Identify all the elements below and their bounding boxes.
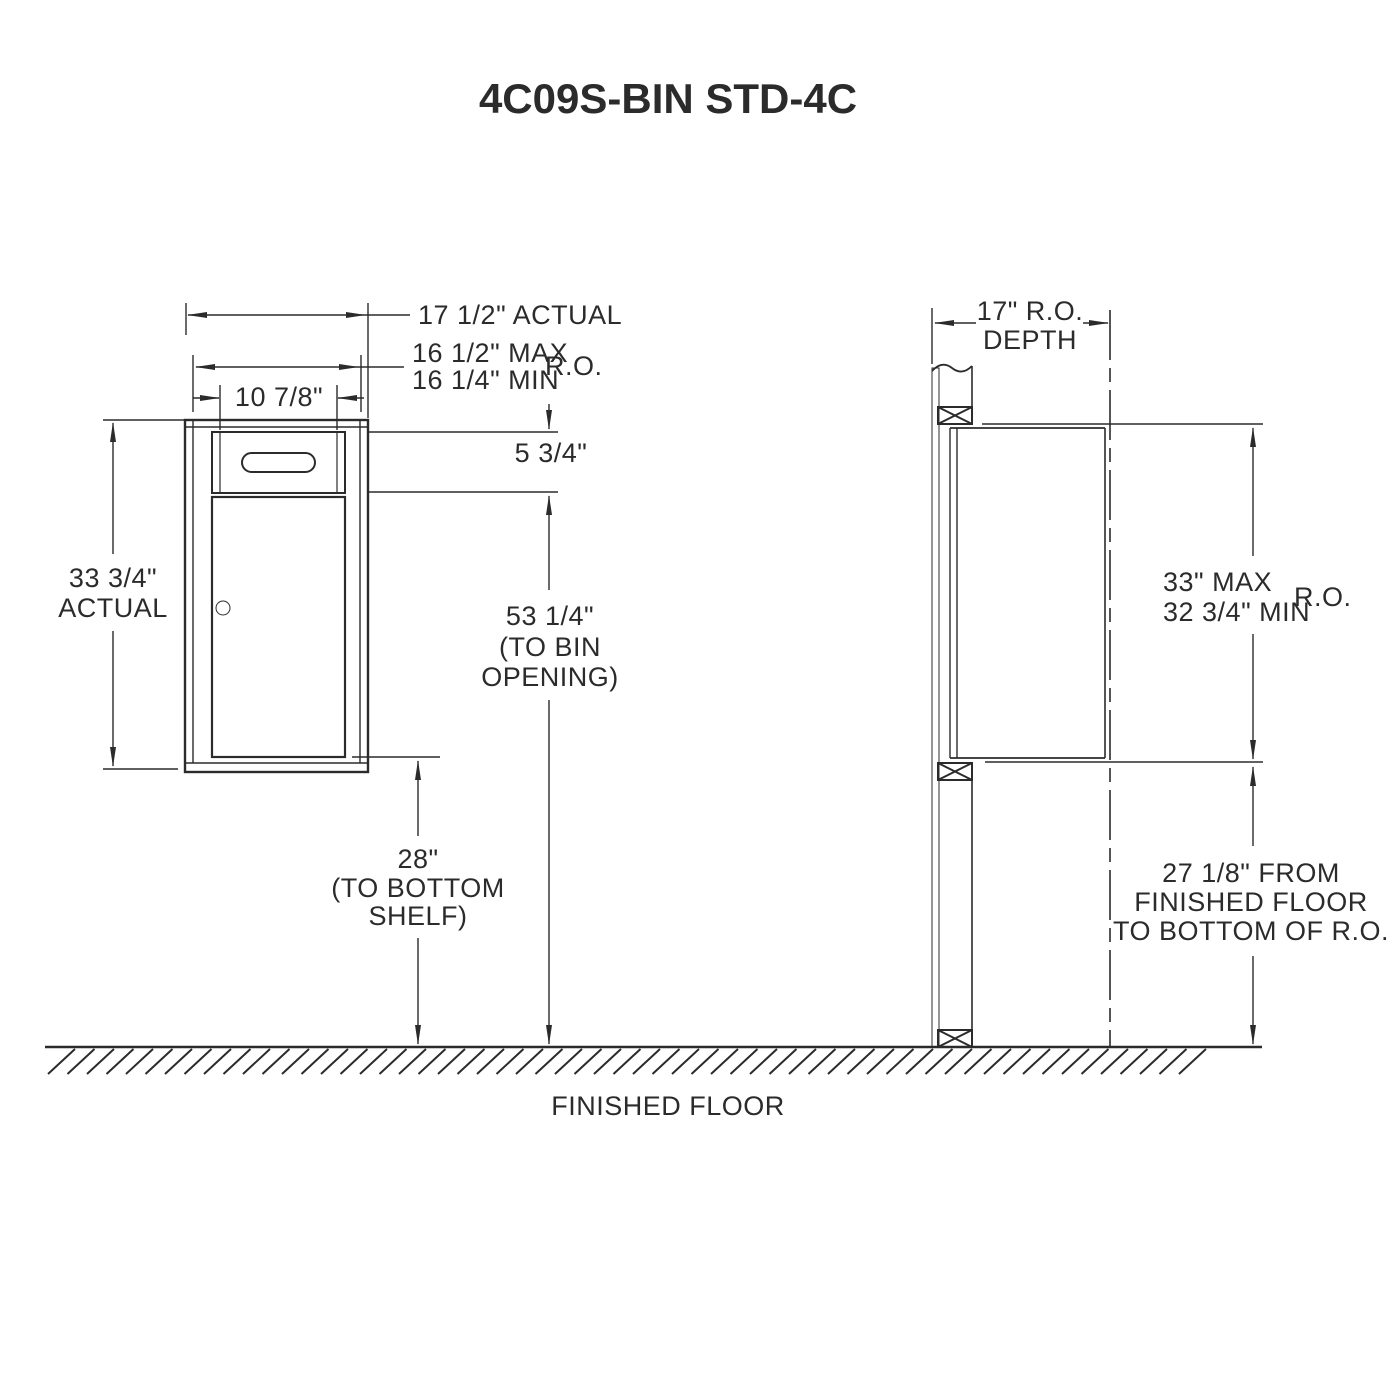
wall-face [932, 368, 939, 1047]
dim-width-ro-suffix-label: R.O. [545, 351, 603, 381]
dim-opening-height-label: 5 3/4" [515, 438, 588, 468]
wall-blocking-top [938, 407, 972, 424]
finished-floor [45, 1047, 1262, 1074]
dim-depth-label-1: 17" R.O. [977, 296, 1084, 326]
dim-shelf-label-2: (TO BOTTOM [331, 873, 505, 903]
dim-depth-label-2: DEPTH [983, 325, 1077, 355]
wall-blocking-bottom [938, 1030, 972, 1047]
bin-hopper-panel [212, 432, 345, 493]
floor-hatch [48, 1049, 1206, 1074]
dim-bin-opening-label-3: OPENING) [481, 662, 619, 692]
dim-width-ro-min-label: 16 1/4" MIN [412, 365, 559, 395]
finished-floor-label: FINISHED FLOOR [551, 1091, 785, 1121]
dim-ro-height-min-label: 32 3/4" MIN [1163, 597, 1310, 627]
drawing-sheet: 4C09S-BIN STD-4C [0, 0, 1400, 1400]
wall-blocking-middle [938, 763, 972, 780]
side-view [932, 310, 1110, 1047]
front-view [185, 420, 368, 772]
dim-bin-opening-label-2: (TO BIN [499, 632, 601, 662]
dim-slot-width-label: 10 7/8" [235, 382, 323, 412]
dim-height-actual-label-1: 33 3/4" [69, 563, 157, 593]
lock-icon [216, 601, 230, 615]
dim-bin-opening-label-1: 53 1/4" [506, 601, 594, 631]
dim-shelf-label-1: 28" [397, 844, 438, 874]
cabinet-side-profile [950, 428, 1105, 758]
dim-floor-label-3: TO BOTTOM OF R.O. [1113, 916, 1389, 946]
page-title: 4C09S-BIN STD-4C [479, 75, 857, 122]
dim-shelf-label-3: SHELF) [368, 901, 467, 931]
dim-ro-height-max-label: 33" MAX [1163, 567, 1272, 597]
dim-floor-label-1: 27 1/8" FROM [1162, 858, 1340, 888]
dim-height-actual-label-2: ACTUAL [58, 593, 168, 623]
technical-drawing: 4C09S-BIN STD-4C [0, 0, 1400, 1400]
mail-slot [242, 453, 315, 472]
dim-floor-label-2: FINISHED FLOOR [1134, 887, 1368, 917]
dim-width-actual-label: 17 1/2" ACTUAL [418, 300, 622, 330]
bin-door [212, 497, 345, 757]
dim-ro-height-suffix-label: R.O. [1294, 582, 1352, 612]
